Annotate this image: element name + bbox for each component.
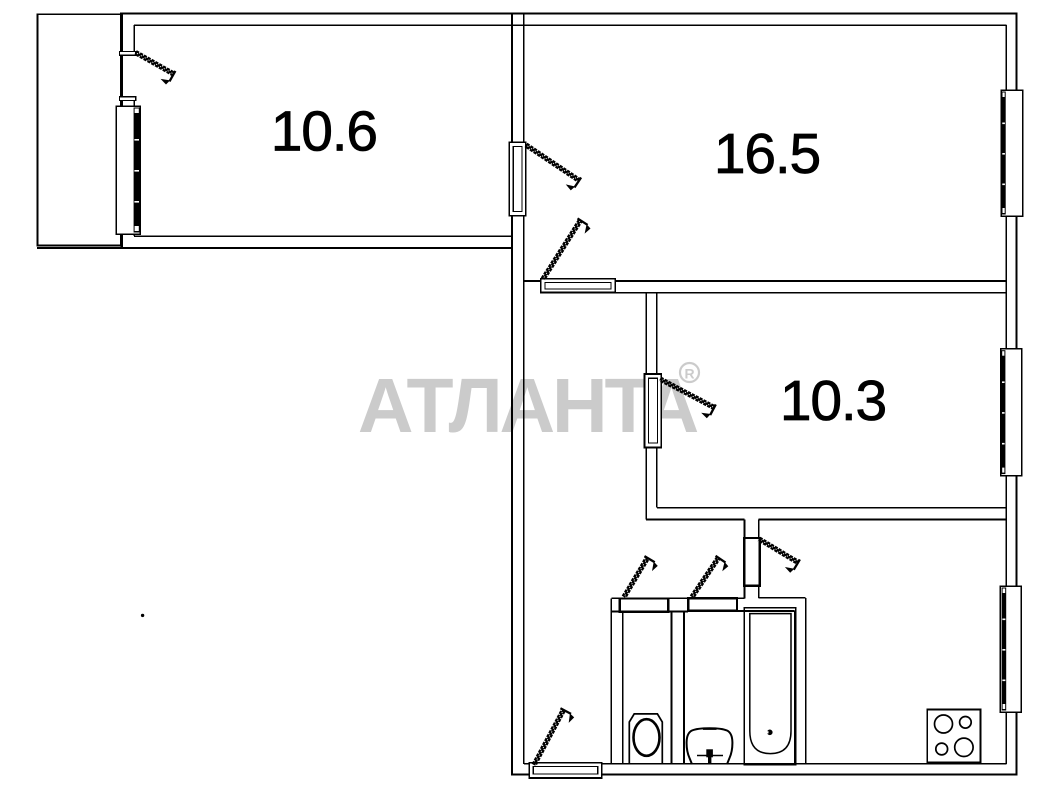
svg-text:16.5: 16.5 (714, 122, 820, 186)
svg-text:R: R (684, 366, 694, 382)
svg-text:10.3: 10.3 (780, 369, 886, 433)
svg-text:10.6: 10.6 (271, 100, 377, 164)
